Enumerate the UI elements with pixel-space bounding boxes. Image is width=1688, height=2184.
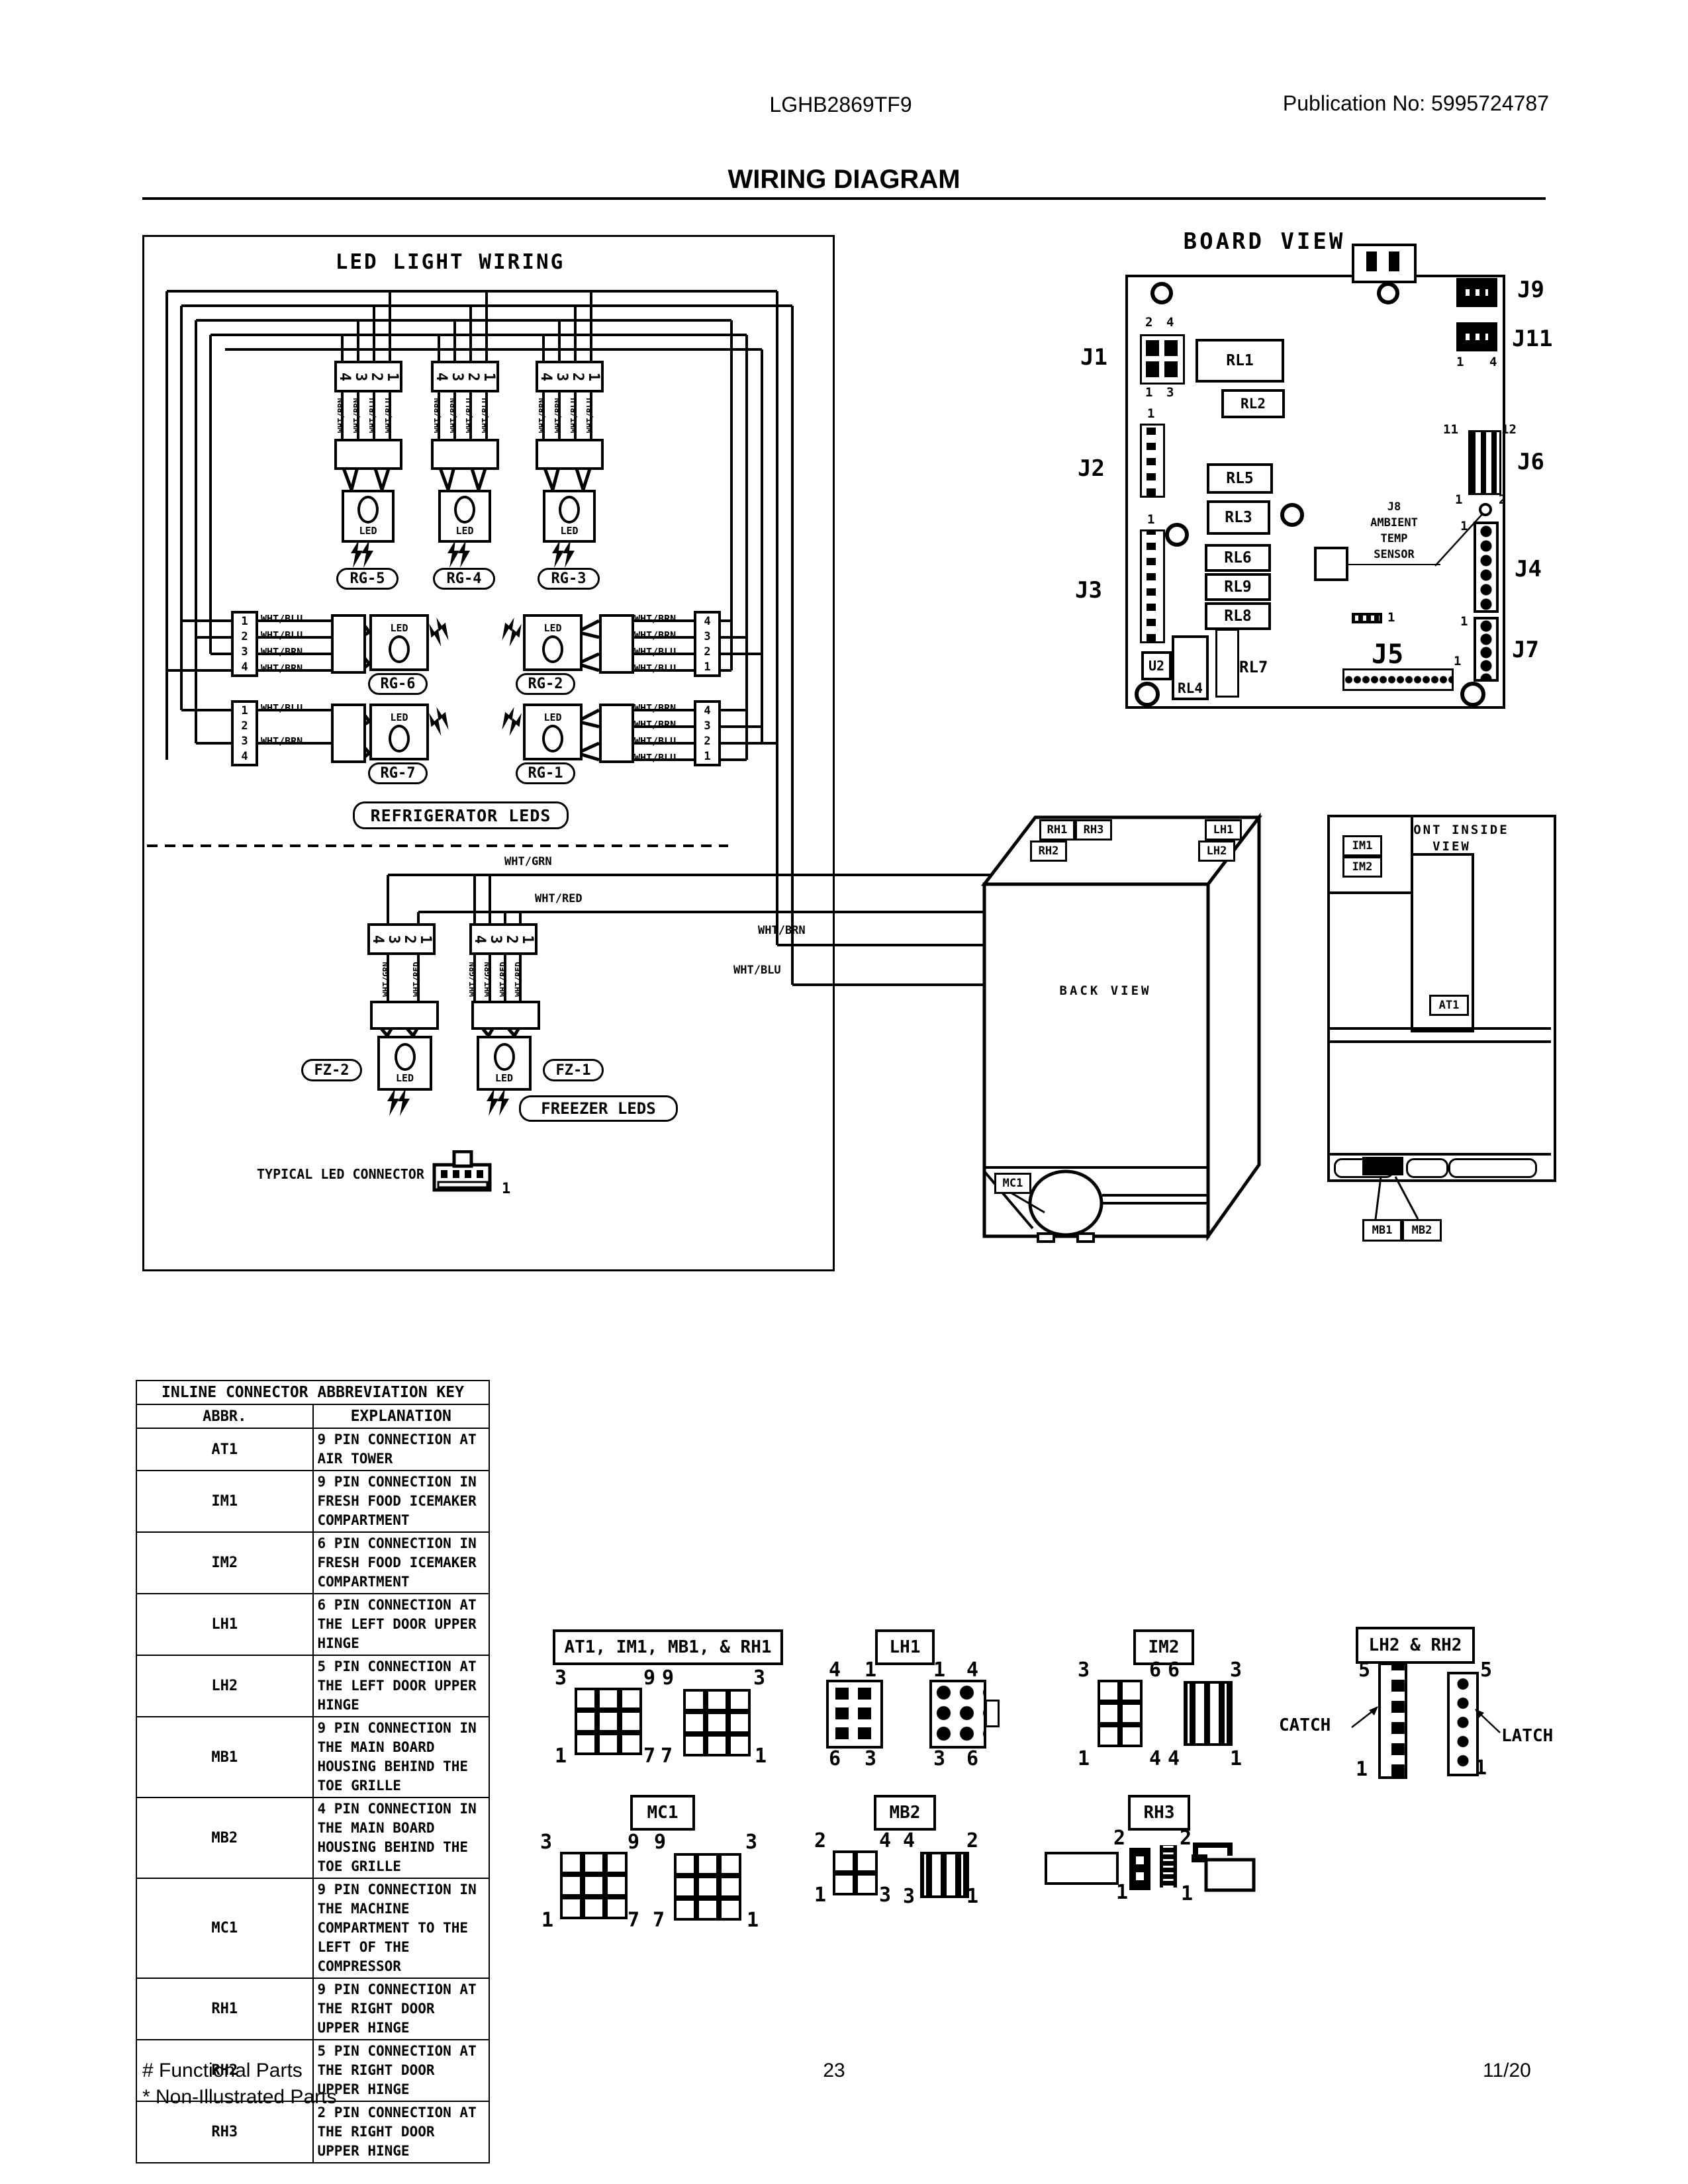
mounting-hole bbox=[1165, 523, 1189, 547]
led-text: LED bbox=[396, 1072, 414, 1084]
wire-label: WHT/BRN bbox=[336, 392, 349, 439]
pin-number: 1 bbox=[933, 1659, 945, 1682]
rh3-pin-connector bbox=[1129, 1848, 1150, 1890]
front-im1-label: IM1 bbox=[1342, 835, 1382, 856]
grille-top-line bbox=[1327, 1153, 1551, 1156]
j6-label: J6 bbox=[1517, 449, 1544, 475]
rg1-pin-strip: 4321 bbox=[694, 700, 721, 766]
wire-label: WHT/BLU bbox=[261, 629, 327, 644]
led-lens bbox=[542, 725, 563, 752]
pin-number: 3 bbox=[540, 1831, 552, 1854]
freezer-leds-label: FREEZER LEDS bbox=[519, 1095, 678, 1122]
relay-rl1: RL1 bbox=[1196, 339, 1284, 383]
catch-latch-arrows bbox=[1278, 1655, 1569, 1787]
pin-number: 3 bbox=[1078, 1659, 1090, 1682]
mb-leader-lines bbox=[1357, 1175, 1443, 1220]
lightning-icon bbox=[387, 1088, 416, 1117]
pin-number: 4 bbox=[966, 1659, 978, 1682]
rg4-label: RG-4 bbox=[433, 568, 495, 590]
pin-number: 1 bbox=[1456, 355, 1464, 369]
wire-label: WHT/BRN bbox=[758, 924, 831, 940]
explanation-cell: 2 PIN CONNECTION AT THE RIGHT DOOR UPPER… bbox=[313, 2101, 490, 2163]
table-row: MB24 PIN CONNECTION IN THE MAIN BOARD HO… bbox=[136, 1797, 489, 1878]
rg5-pin-header: 4321 bbox=[334, 361, 402, 392]
rg4-led: LED bbox=[438, 490, 491, 543]
pin-number: 1 bbox=[519, 934, 536, 943]
fz2-label: FZ-2 bbox=[301, 1059, 362, 1081]
rg4-connector bbox=[431, 439, 499, 470]
lightning-icon bbox=[487, 1088, 516, 1117]
explanation-cell: 9 PIN CONNECTION IN THE MAIN BOARD HOUSI… bbox=[313, 1717, 490, 1797]
relay-rl5: RL5 bbox=[1207, 463, 1273, 494]
pin-number: 1 bbox=[814, 1884, 826, 1907]
pin-number: 1 bbox=[1230, 1747, 1242, 1770]
wire-label: WHT/BLU bbox=[634, 735, 694, 750]
pin-number: 1 bbox=[241, 615, 248, 628]
led-text: LED bbox=[455, 525, 473, 537]
pin-number: 2 bbox=[401, 934, 418, 943]
pin-number: 1 bbox=[481, 372, 497, 381]
pin-number: 2 bbox=[241, 719, 248, 733]
pin-number: 2 bbox=[1145, 315, 1152, 330]
wire-label: WHT/BLU bbox=[464, 392, 477, 439]
pin-number: 3 bbox=[865, 1747, 876, 1770]
abbr-cell: IM2 bbox=[136, 1532, 313, 1594]
table-row: LH16 PIN CONNECTION AT THE LEFT DOOR UPP… bbox=[136, 1594, 489, 1655]
grille-connector-area bbox=[1362, 1157, 1403, 1175]
pin-number: 3 bbox=[241, 645, 248, 659]
explanation-cell: 5 PIN CONNECTION AT THE RIGHT DOOR UPPER… bbox=[313, 2040, 490, 2101]
j5-connector bbox=[1342, 668, 1454, 691]
led-text: LED bbox=[390, 711, 408, 723]
pin-number: 3 bbox=[555, 1666, 567, 1690]
pinout-connector bbox=[1098, 1680, 1143, 1747]
table-row: IM19 PIN CONNECTION IN FRESH FOOD ICEMAK… bbox=[136, 1471, 489, 1532]
j3-label: J3 bbox=[1075, 577, 1102, 604]
pin-number: 3 bbox=[879, 1884, 891, 1907]
wire-label: WHT/BLU bbox=[634, 662, 694, 677]
rh3-connector-body bbox=[1045, 1852, 1119, 1885]
led-lens bbox=[389, 725, 410, 752]
back-lh1-label: LH1 bbox=[1205, 819, 1242, 841]
pin-number: 4 bbox=[879, 1829, 891, 1852]
led-lens bbox=[454, 496, 475, 523]
pinout-connector bbox=[929, 1680, 986, 1749]
pin-number: 11 bbox=[1443, 422, 1458, 437]
publication-number: Publication No: 5995724787 bbox=[1205, 91, 1549, 118]
led-text: LED bbox=[560, 525, 578, 537]
wire-label: WHT/BLU bbox=[261, 702, 327, 717]
led-lens bbox=[389, 635, 410, 663]
led-lens bbox=[357, 496, 379, 523]
wire-label: WHT/RED bbox=[513, 954, 526, 1005]
relay-rl8: RL8 bbox=[1205, 602, 1271, 630]
rg6-connector bbox=[331, 614, 366, 674]
back-lh2-label: LH2 bbox=[1198, 841, 1235, 862]
pin-number: 1 bbox=[502, 1181, 515, 1198]
table-row: AT19 PIN CONNECTION AT AIR TOWER bbox=[136, 1428, 489, 1471]
rg3-pin-header: 4321 bbox=[536, 361, 604, 392]
wire-label: WHT/BLU bbox=[367, 392, 381, 439]
page-number: 23 bbox=[794, 2060, 874, 2082]
abbr-cell: IM1 bbox=[136, 1471, 313, 1532]
front-divider bbox=[1327, 1027, 1551, 1030]
rg4-pin-header: 4321 bbox=[431, 361, 499, 392]
pin-number: 2 bbox=[1180, 1827, 1192, 1850]
pinout-connector bbox=[826, 1680, 883, 1749]
rg3-connector bbox=[536, 439, 604, 470]
back-rh2-label: RH2 bbox=[1030, 841, 1067, 862]
j1-label: J1 bbox=[1080, 344, 1107, 371]
wire-label: WHT/BRN bbox=[448, 392, 461, 439]
table-row: MB19 PIN CONNECTION IN THE MAIN BOARD HO… bbox=[136, 1717, 489, 1797]
wire-label: WHT/BRN bbox=[634, 719, 694, 733]
pin-number: 3 bbox=[352, 372, 369, 381]
j11-label: J11 bbox=[1512, 326, 1552, 352]
pin-number: 4 bbox=[471, 934, 488, 943]
fz2-pin-header: 4321 bbox=[367, 923, 436, 955]
pin-number: 3 bbox=[1230, 1659, 1242, 1682]
explanation-cell: 9 PIN CONNECTION IN FRESH FOOD ICEMAKER … bbox=[313, 1471, 490, 1532]
front-mb1-label: MB1 bbox=[1362, 1219, 1402, 1242]
wiring-diagram-page: LGHB2869TF9 Publication No: 5995724787 W… bbox=[0, 0, 1688, 2184]
pin-number: 6 bbox=[829, 1747, 841, 1770]
back-rh3-label: RH3 bbox=[1075, 819, 1112, 841]
j6-connector bbox=[1468, 430, 1501, 495]
pin-number: 3 bbox=[1166, 385, 1174, 400]
led-lens bbox=[395, 1043, 416, 1071]
pinout-connector bbox=[683, 1689, 751, 1756]
pin-number: 1 bbox=[1460, 519, 1468, 533]
pinout-connector bbox=[1184, 1681, 1233, 1746]
rg6-led: LED bbox=[369, 614, 429, 671]
abbr-cell: RH1 bbox=[136, 1978, 313, 2040]
rh3-pin-connector bbox=[1160, 1845, 1177, 1888]
fz1-pin-header: 4321 bbox=[469, 923, 538, 955]
j2-label: J2 bbox=[1078, 455, 1105, 482]
pin-number: 4 bbox=[829, 1659, 841, 1682]
led-lens bbox=[559, 496, 580, 523]
pin-number: 3 bbox=[553, 372, 570, 381]
pin-number: 1 bbox=[585, 372, 602, 381]
connector-latch-tab bbox=[985, 1700, 1000, 1727]
explanation-cell: 6 PIN CONNECTION IN FRESH FOOD ICEMAKER … bbox=[313, 1532, 490, 1594]
front-divider bbox=[1327, 1040, 1551, 1043]
pin-number: 1 bbox=[704, 750, 710, 763]
pin-number: 6 bbox=[1149, 1659, 1161, 1682]
rg3-label: RG-3 bbox=[538, 568, 600, 590]
pin-number: 3 bbox=[704, 630, 710, 643]
relay-rl2: RL2 bbox=[1221, 389, 1285, 418]
back-rh1-label: RH1 bbox=[1039, 819, 1075, 841]
explanation-cell: 4 PIN CONNECTION IN THE MAIN BOARD HOUSI… bbox=[313, 1797, 490, 1878]
wire-label: WHT/BRN bbox=[352, 392, 365, 439]
pin-number: 2 bbox=[465, 372, 481, 381]
pin-number: 1 bbox=[541, 1909, 553, 1932]
pin-number: 4 bbox=[241, 660, 248, 674]
rg7-pin-strip: 1234 bbox=[231, 700, 258, 766]
pin-number: 2 bbox=[704, 735, 710, 748]
fz1-led: LED bbox=[477, 1036, 532, 1091]
j5-label: J5 bbox=[1372, 639, 1403, 670]
pin-number: 4 bbox=[241, 750, 248, 763]
pin-number: 9 bbox=[643, 1666, 655, 1690]
j2-connector bbox=[1140, 424, 1165, 498]
front-im2-label: IM2 bbox=[1342, 856, 1382, 878]
pin-number: 4 bbox=[1168, 1747, 1180, 1770]
mounting-hole bbox=[1460, 682, 1485, 707]
pin-number: 3 bbox=[704, 719, 710, 733]
table-row: LH25 PIN CONNECTION AT THE LEFT DOOR UPP… bbox=[136, 1655, 489, 1717]
pin-number: 1 bbox=[1145, 385, 1152, 400]
board-component bbox=[1314, 547, 1348, 581]
lightning-icon bbox=[447, 540, 477, 569]
page-title: WIRING DIAGRAM bbox=[662, 164, 1026, 195]
pin-number: 1 bbox=[1078, 1747, 1090, 1770]
pin-number: 3 bbox=[385, 934, 402, 943]
fz2-led: LED bbox=[377, 1036, 432, 1091]
wire-label: WHT/BRN bbox=[553, 392, 566, 439]
column-header-explanation: EXPLANATION bbox=[313, 1404, 490, 1428]
wire-label: WHT/BRN bbox=[634, 629, 694, 644]
abbr-cell: LH2 bbox=[136, 1655, 313, 1717]
abbr-cell: RH3 bbox=[136, 2101, 313, 2163]
pin-number: 2 bbox=[966, 1829, 978, 1852]
led-text: LED bbox=[390, 622, 408, 634]
pin-number: 1 bbox=[1454, 654, 1461, 668]
rg5-led: LED bbox=[342, 490, 395, 543]
back-mc1-label: MC1 bbox=[994, 1173, 1031, 1194]
wire-label: WHT/BRN bbox=[537, 392, 550, 439]
rg1-connector bbox=[599, 704, 634, 763]
front-mb2-label: MB2 bbox=[1402, 1219, 1442, 1242]
pin-number: 1 bbox=[241, 704, 248, 717]
j7-connector bbox=[1474, 617, 1499, 682]
lightning-icon bbox=[552, 540, 581, 569]
lightning-icon bbox=[351, 540, 380, 569]
title-rule bbox=[142, 197, 1546, 200]
pin-number: 3 bbox=[903, 1885, 915, 1908]
pin-number: 7 bbox=[661, 1745, 673, 1768]
fz1-connector bbox=[471, 1001, 540, 1030]
pin-number: 3 bbox=[753, 1666, 765, 1690]
pin-number: 4 bbox=[336, 372, 353, 381]
pin-number: 1 bbox=[1387, 610, 1395, 625]
pin-number: 9 bbox=[628, 1831, 639, 1854]
pin-number: 3 bbox=[449, 372, 465, 381]
rg6-label: RG-6 bbox=[368, 673, 428, 695]
rg2-connector bbox=[599, 614, 634, 674]
j4-connector bbox=[1474, 522, 1499, 613]
pin-number: 1 bbox=[555, 1745, 567, 1768]
grille-slot bbox=[1448, 1158, 1537, 1178]
pin-number: 4 bbox=[704, 704, 710, 717]
pinout-connector bbox=[575, 1688, 642, 1755]
rg3-led: LED bbox=[543, 490, 596, 543]
wire-label: WHT/GRN bbox=[381, 954, 394, 1005]
wire-label: WHT/GRN bbox=[483, 954, 496, 1005]
pinout-connector bbox=[833, 1850, 878, 1895]
rg2-label: RG-2 bbox=[516, 673, 575, 695]
wire-label: WHT/RED bbox=[411, 954, 424, 1005]
explanation-cell: 9 PIN CONNECTION IN THE MACHINE COMPARTM… bbox=[313, 1878, 490, 1978]
rg6-pin-strip: 1234 bbox=[231, 611, 258, 677]
fz1-label: FZ-1 bbox=[543, 1059, 604, 1081]
rg1-label: RG-1 bbox=[516, 762, 575, 784]
relay-rl3: RL3 bbox=[1207, 500, 1270, 535]
wire-label: WHT/BLU bbox=[569, 392, 582, 439]
led-lens bbox=[494, 1043, 515, 1071]
pin-number: 2 bbox=[1113, 1827, 1125, 1850]
wire-label: WHT/BRN bbox=[261, 735, 327, 750]
wire-label: WHT/BLU bbox=[261, 613, 327, 627]
wire-label: WHT/BLU bbox=[383, 392, 397, 439]
pinout-im2-label: IM2 bbox=[1133, 1629, 1194, 1665]
rg5-label: RG-5 bbox=[336, 568, 399, 590]
pin-number: 1 bbox=[704, 660, 710, 674]
j9-label: J9 bbox=[1517, 277, 1544, 303]
pin-number: 9 bbox=[662, 1666, 674, 1690]
pin-number: 3 bbox=[241, 735, 248, 748]
pin-number: 2 bbox=[368, 372, 385, 381]
relay-rl7-label: RL7 bbox=[1239, 658, 1268, 676]
wire-label: WHT/RED bbox=[535, 892, 608, 908]
pinout-connector bbox=[920, 1852, 969, 1898]
front-at1-label: AT1 bbox=[1429, 995, 1469, 1016]
pinout-group1-label: AT1, IM1, MB1, & RH1 bbox=[553, 1629, 783, 1665]
pin-number: 4 bbox=[1489, 355, 1497, 369]
wire-label: WHT/BLU bbox=[480, 392, 493, 439]
led-text: LED bbox=[495, 1072, 513, 1084]
pin-number: 6 bbox=[966, 1747, 978, 1770]
wire-label: WHT/GRN bbox=[467, 954, 481, 1005]
back-view-title: BACK VIEW bbox=[1053, 983, 1158, 999]
abbr-cell: MB1 bbox=[136, 1717, 313, 1797]
mounting-hole bbox=[1150, 282, 1173, 304]
component-u2: U2 bbox=[1141, 651, 1172, 680]
pin-number: 2 bbox=[503, 934, 520, 943]
mounting-hole bbox=[1135, 682, 1160, 707]
pin-number: 4 bbox=[369, 934, 386, 943]
pin-number: 12 bbox=[1501, 422, 1517, 437]
led-connector-icon bbox=[430, 1150, 496, 1193]
pin-number: 1 bbox=[747, 1909, 759, 1932]
wire-label: WHT/BRN bbox=[634, 702, 694, 717]
wire-label: WHT/BLU bbox=[634, 646, 694, 660]
abbr-cell: MB2 bbox=[136, 1797, 313, 1878]
pin-number: 7 bbox=[643, 1745, 655, 1768]
led-text: LED bbox=[359, 525, 377, 537]
wire-label: WHT/BLU bbox=[585, 392, 598, 439]
wire-label: WHT/BRN bbox=[432, 392, 445, 439]
abbr-cell: MC1 bbox=[136, 1878, 313, 1978]
pin-number: 4 bbox=[1149, 1747, 1161, 1770]
j3-connector bbox=[1140, 529, 1165, 643]
pin-number: 1 bbox=[1147, 512, 1154, 527]
pinout-rh3-label: RH3 bbox=[1128, 1795, 1190, 1831]
pin-number: 7 bbox=[628, 1909, 639, 1932]
pin-number: 2 bbox=[569, 372, 586, 381]
rg1-led: LED bbox=[523, 704, 583, 760]
table-row: MC19 PIN CONNECTION IN THE MACHINE COMPA… bbox=[136, 1878, 489, 1978]
pinout-lh1-label: LH1 bbox=[875, 1629, 935, 1665]
wire-label: WHT/BLU bbox=[634, 752, 694, 766]
table-row: RH19 PIN CONNECTION AT THE RIGHT DOOR UP… bbox=[136, 1978, 489, 2040]
typical-led-connector-label: TYPICAL LED CONNECTOR bbox=[257, 1166, 429, 1183]
pin-number: 4 bbox=[704, 615, 710, 628]
explanation-cell: 9 PIN CONNECTION AT AIR TOWER bbox=[313, 1428, 490, 1471]
pin-number: 1 bbox=[755, 1745, 767, 1768]
rg7-label: RG-7 bbox=[368, 762, 428, 784]
rg7-led: LED bbox=[369, 704, 429, 760]
j1-connector bbox=[1140, 334, 1185, 385]
pin-number: 2 bbox=[814, 1829, 826, 1852]
wire-label: WHT/RED bbox=[498, 954, 511, 1005]
pin-number: 1 bbox=[966, 1885, 978, 1908]
rh3-latch-connector bbox=[1192, 1836, 1264, 1895]
footer-functional-parts: # Functional Parts bbox=[142, 2060, 303, 2082]
pin-number: 9 bbox=[654, 1831, 666, 1854]
relay-rl6: RL6 bbox=[1205, 544, 1271, 572]
table-row: RH32 PIN CONNECTION AT THE RIGHT DOOR UP… bbox=[136, 2101, 489, 2163]
pin-number: 3 bbox=[487, 934, 504, 943]
relay-rl9: RL9 bbox=[1205, 573, 1271, 601]
rg7-connector bbox=[331, 704, 366, 763]
pin-number: 4 bbox=[538, 372, 554, 381]
wire-label: WHT/BRN bbox=[634, 613, 694, 627]
relay-rl4: RL4 bbox=[1172, 635, 1209, 700]
pinout-connector bbox=[674, 1853, 741, 1921]
pin-number: 2 bbox=[704, 645, 710, 659]
led-lens bbox=[542, 635, 563, 663]
pin-number: 1 bbox=[1460, 614, 1468, 629]
table-title: INLINE CONNECTOR ABBREVIATION KEY bbox=[136, 1381, 489, 1404]
pin-number: 4 bbox=[1166, 315, 1174, 330]
pin-number: 3 bbox=[933, 1747, 945, 1770]
mounting-hole bbox=[1377, 282, 1399, 304]
footer-date: 11/20 bbox=[1483, 2060, 1531, 2082]
j7-label: J7 bbox=[1512, 637, 1539, 663]
pin-number: 3 bbox=[745, 1831, 757, 1854]
mounting-hole bbox=[1280, 503, 1304, 527]
wire-label: WHT/BLU bbox=[733, 964, 806, 979]
pin-number: 7 bbox=[653, 1909, 665, 1932]
j4-label: J4 bbox=[1515, 556, 1542, 582]
rg2-led: LED bbox=[523, 614, 583, 671]
model-number: LGHB2869TF9 bbox=[695, 91, 986, 118]
led-text: LED bbox=[543, 622, 561, 634]
rg2-pin-strip: 4321 bbox=[694, 611, 721, 677]
relay-rl7-body bbox=[1215, 629, 1239, 698]
table-row: IM26 PIN CONNECTION IN FRESH FOOD ICEMAK… bbox=[136, 1532, 489, 1594]
wire-label: WHT/GRN bbox=[504, 855, 577, 871]
board-view-title: BOARD VIEW bbox=[1165, 228, 1364, 255]
pinout-mc1-label: MC1 bbox=[630, 1795, 695, 1831]
pin-number: 4 bbox=[903, 1829, 915, 1852]
board-top-connector bbox=[1352, 244, 1417, 283]
wire-label: WHT/BRN bbox=[261, 646, 327, 660]
j11-connector bbox=[1456, 322, 1497, 351]
abbr-cell: LH1 bbox=[136, 1594, 313, 1655]
pin-number: 1 bbox=[1147, 406, 1154, 421]
abbr-cell: AT1 bbox=[136, 1428, 313, 1471]
board-small-connector bbox=[1352, 613, 1382, 623]
column-header-abbr: ABBR. bbox=[136, 1404, 313, 1428]
explanation-cell: 5 PIN CONNECTION AT THE LEFT DOOR UPPER … bbox=[313, 1655, 490, 1717]
led-text: LED bbox=[543, 711, 561, 723]
fz2-connector bbox=[370, 1001, 439, 1030]
pin-number: 1 bbox=[384, 372, 400, 381]
